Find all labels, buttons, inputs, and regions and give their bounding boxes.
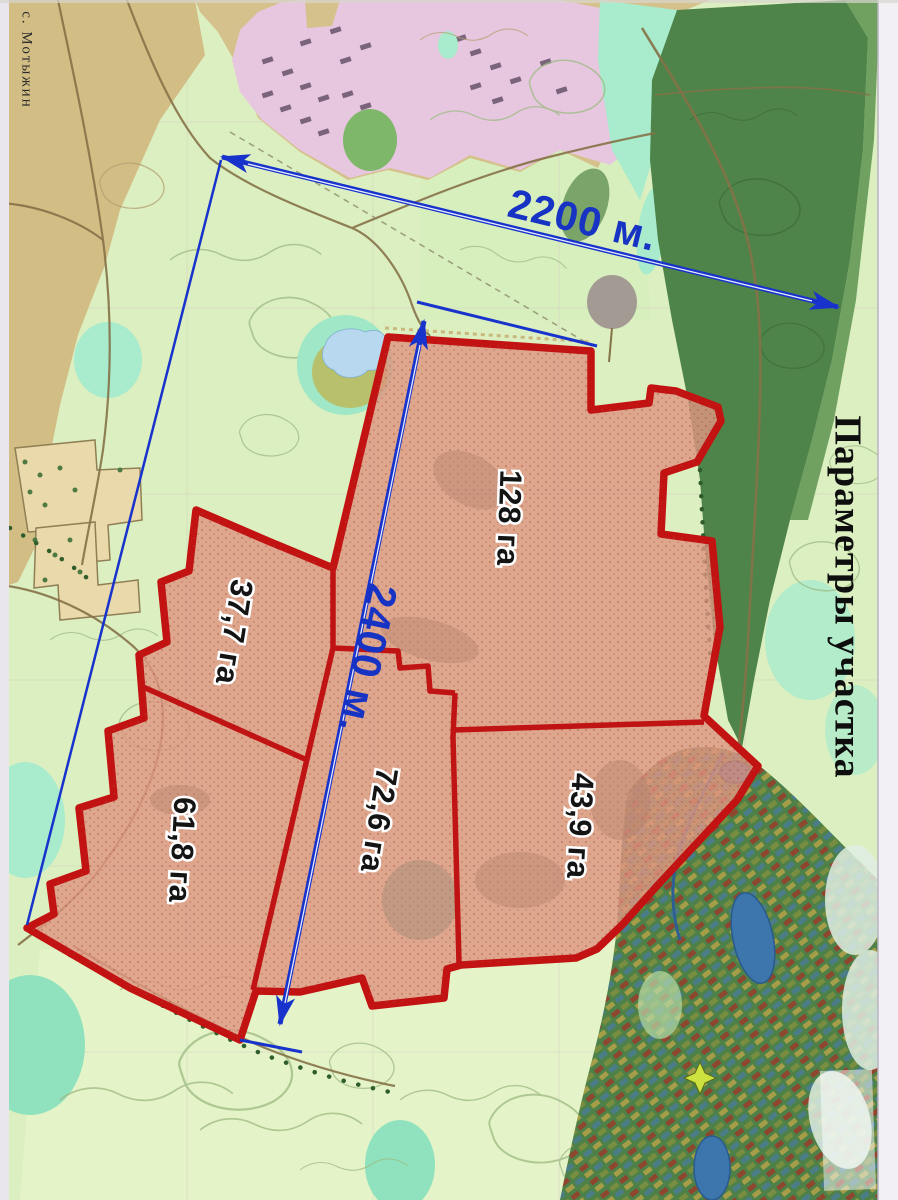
scan-edge-right [878, 0, 898, 1200]
village-park [343, 109, 397, 171]
scan-edge-left [0, 0, 9, 1200]
scan-edge-top [0, 0, 898, 3]
scan-glare [820, 1069, 876, 1191]
parcel-area-label-43-9: 43,9 га [560, 772, 601, 880]
page-title: Параметры участка [826, 415, 868, 778]
parcel-area-label-61-8: 61,8 га [162, 796, 203, 904]
village-name-label: с. Мотыжин [19, 11, 35, 108]
pond-south [694, 1136, 730, 1200]
quarry-spot [587, 275, 637, 329]
land-plot-map: 2200 м. 2400 м. 128 га 37,7 га 61,8 га 7… [0, 0, 898, 1200]
parcel-area-label-128: 128 га [490, 469, 528, 567]
